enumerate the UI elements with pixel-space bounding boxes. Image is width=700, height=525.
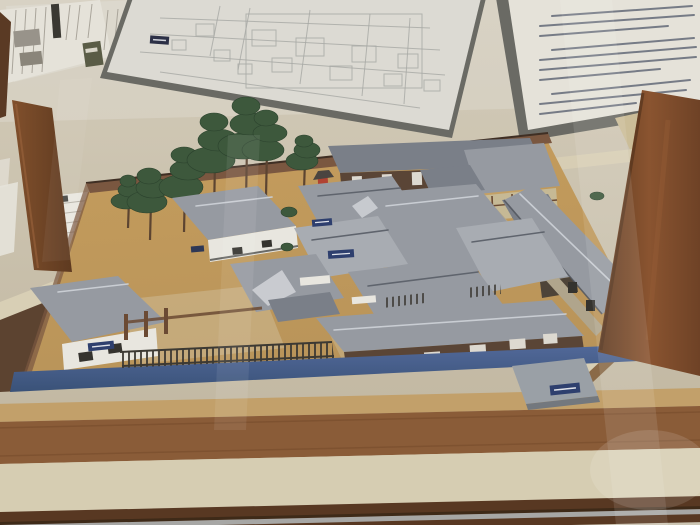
bush	[281, 207, 297, 217]
newspaper-photo	[13, 29, 41, 48]
storehouse-label	[191, 245, 204, 252]
photo-canvas	[0, 0, 700, 525]
museum-display-photo	[0, 0, 700, 525]
bush	[281, 243, 293, 251]
floor-plan-title-block	[150, 35, 170, 44]
newspaper-photo-2	[19, 51, 42, 66]
newspaper-ad-block	[82, 41, 103, 67]
